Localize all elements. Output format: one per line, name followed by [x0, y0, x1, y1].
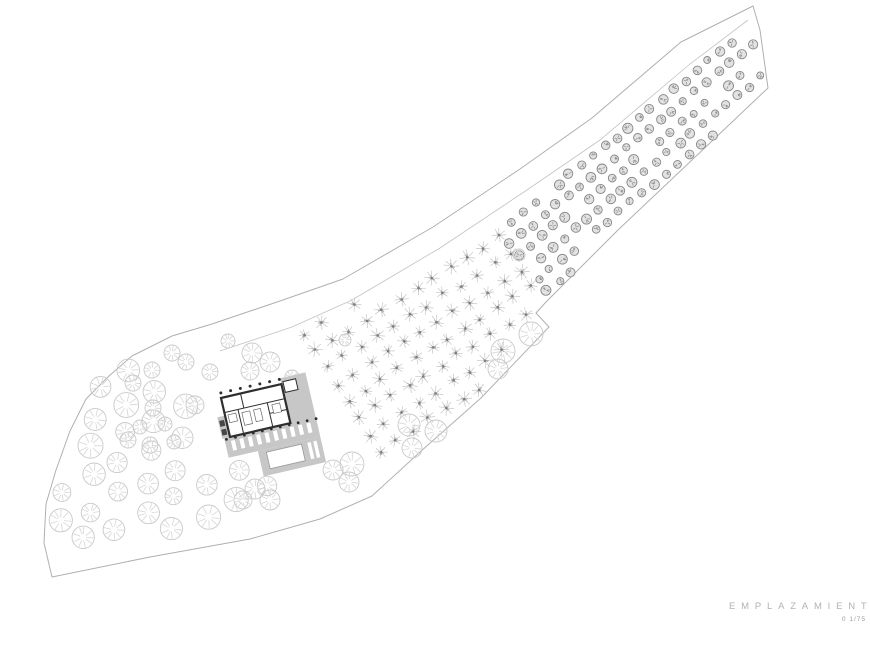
drawing-title: EMPLAZAMIENTO [729, 601, 870, 612]
drawing-scale-label: 0 1/75 [728, 616, 866, 623]
inner-track-line [220, 20, 748, 351]
site-boundary [44, 6, 768, 577]
building-plan [212, 372, 328, 484]
olive-grove [504, 39, 763, 296]
site-plan-sheet: EMPLAZAMIENTO 0 1/75 [0, 0, 870, 652]
site-plan-drawing [0, 0, 870, 652]
almond-orchard [299, 228, 538, 459]
